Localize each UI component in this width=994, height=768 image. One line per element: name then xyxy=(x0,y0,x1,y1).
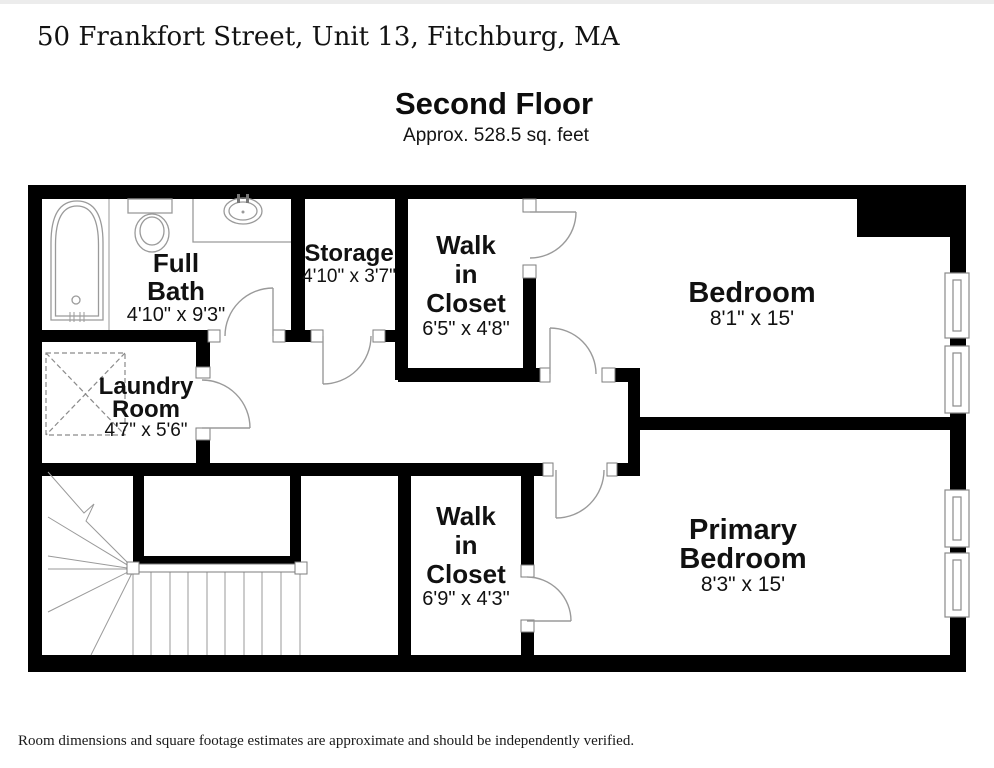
window xyxy=(945,553,969,617)
svg-text:Room: Room xyxy=(112,396,180,423)
room-dims: 6'9" x 4'3" xyxy=(422,588,509,610)
stair-treads xyxy=(133,572,300,655)
floor-plan-page: { "header": { "address": "50 Frankfort S… xyxy=(0,0,994,768)
room-dims: 8'3" x 15' xyxy=(701,573,785,596)
svg-text:Bath: Bath xyxy=(147,276,205,306)
room-dims: 6'5" x 4'8" xyxy=(422,318,509,340)
room-label-primary-bedroom: Primary Bedroom 8'3" x 15' xyxy=(679,514,806,596)
room-label-walk-in-closet-upper: Walk in Closet 6'5" x 4'8" xyxy=(422,230,509,340)
svg-text:Closet: Closet xyxy=(426,559,506,589)
sink-icon xyxy=(193,194,291,242)
svg-text:in: in xyxy=(454,259,477,289)
bath-door-arc xyxy=(225,288,273,336)
bathtub-icon xyxy=(51,201,103,322)
floor-plan-drawing: Full Bath 4'10" x 9'3" Storage 4'10" x 3… xyxy=(0,0,994,768)
room-dims: 4'10" x 3'7" xyxy=(302,266,396,287)
svg-text:Walk: Walk xyxy=(436,501,496,531)
winder-treads xyxy=(48,472,134,655)
primary-bedroom-door-arc xyxy=(556,470,604,518)
window xyxy=(945,346,969,413)
svg-text:Full: Full xyxy=(153,248,199,278)
svg-text:in: in xyxy=(454,530,477,560)
lower-closet-door-arc xyxy=(527,577,571,621)
storage-door-arc xyxy=(323,336,371,384)
room-label-bedroom: Bedroom 8'1" x 15' xyxy=(688,277,815,330)
room-label-laundry: Laundry Room 4'7" x 5'6" xyxy=(99,373,194,441)
stairs xyxy=(48,472,307,655)
svg-text:Storage: Storage xyxy=(304,240,393,267)
svg-text:Primary: Primary xyxy=(689,514,797,546)
disclaimer-text: Room dimensions and square footage estim… xyxy=(18,733,634,750)
toilet-icon xyxy=(128,199,172,252)
room-label-walk-in-closet-lower: Walk in Closet 6'9" x 4'3" xyxy=(422,501,509,610)
stair-newel xyxy=(295,562,307,574)
room-dims: 4'7" x 5'6" xyxy=(104,420,187,441)
window xyxy=(945,273,969,338)
room-label-full-bath: Full Bath 4'10" x 9'3" xyxy=(127,248,226,326)
laundry-door-arc xyxy=(202,380,250,428)
svg-text:Closet: Closet xyxy=(426,288,506,318)
svg-text:Bedroom: Bedroom xyxy=(679,543,806,575)
svg-text:Walk: Walk xyxy=(436,230,496,260)
bedroom-door-arc xyxy=(550,328,596,374)
window xyxy=(945,490,969,547)
stair-handrail xyxy=(133,564,301,572)
stair-newel xyxy=(127,562,139,574)
svg-text:Bedroom: Bedroom xyxy=(688,277,815,309)
room-dims: 4'10" x 9'3" xyxy=(127,304,226,326)
room-label-storage: Storage 4'10" x 3'7" xyxy=(302,240,396,287)
room-dims: 8'1" x 15' xyxy=(710,307,794,330)
upper-closet-door-arc xyxy=(530,212,576,258)
